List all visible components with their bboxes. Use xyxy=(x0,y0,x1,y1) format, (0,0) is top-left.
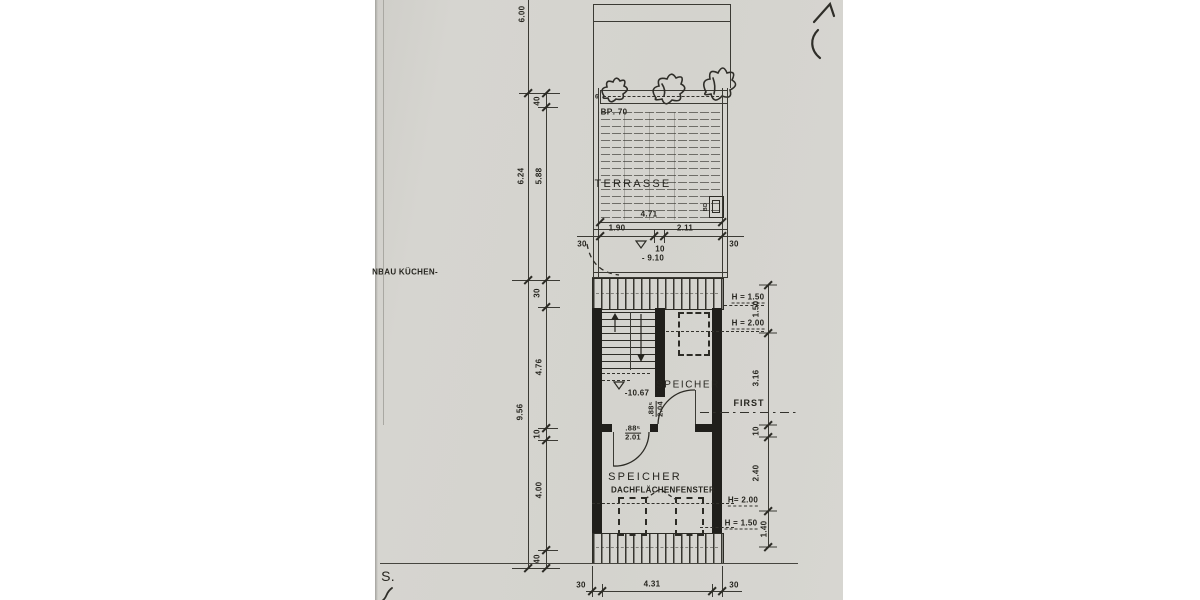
dim-30-bot-left: 30 xyxy=(576,581,586,590)
first-label: FIRST xyxy=(734,398,765,408)
dim-431: 4.31 xyxy=(644,580,661,589)
dim-10-mid: 10 xyxy=(655,245,665,254)
dim-956: 9.56 xyxy=(516,404,525,421)
dim-10-left: 10 xyxy=(533,429,542,439)
stair-down-arrow xyxy=(637,354,645,362)
dim-240: 2.40 xyxy=(752,465,761,482)
dim-30-terr-right: 30 xyxy=(729,240,739,249)
chimney-dashed-box xyxy=(678,312,710,356)
paper-edge-shadow xyxy=(375,0,378,600)
roof-window-chevron xyxy=(643,486,677,501)
handwritten-stroke-icon xyxy=(377,586,399,600)
level-terrace: - 9.10 xyxy=(642,254,664,263)
dim-30-bot-right: 30 xyxy=(729,581,739,590)
ground-line xyxy=(380,563,798,564)
dim-30-left: 30 xyxy=(533,288,542,298)
dim-588: 5.88 xyxy=(535,168,544,185)
side-note: NBAU KÜCHEN- xyxy=(372,268,438,277)
sheet-border-line xyxy=(383,0,384,425)
dim-10-right: 10 xyxy=(752,426,761,436)
wall-mid-a xyxy=(592,424,612,432)
stair-up-arrow xyxy=(611,313,619,320)
door-upper-size: .88⁵2.04 xyxy=(648,401,665,417)
drain-label: BD xyxy=(703,203,709,212)
floor-plan-scan: NBAU KÜCHEN- 6.00 40 6.24 5.88 30 9.56 4… xyxy=(0,0,1200,600)
level-marker-icon xyxy=(613,381,625,390)
dim-316: 3.16 xyxy=(752,370,761,387)
dim-600: 6.00 xyxy=(518,6,527,23)
dim-476: 4.76 xyxy=(535,359,544,376)
terrace-label: TERRASSE xyxy=(595,178,672,190)
dim-471: 4.71 xyxy=(641,210,658,219)
wall-mid-c xyxy=(695,424,722,432)
dim-140: 1.40 xyxy=(760,521,769,538)
handwritten-mark-icon xyxy=(806,0,846,60)
roof-band-top xyxy=(592,278,724,310)
wall-left xyxy=(592,308,602,533)
drain-box-inner xyxy=(712,200,720,213)
wall-right xyxy=(712,308,722,533)
h150-bottom: H = 1.50 xyxy=(725,519,758,530)
h200-bottom: H= 2.00 xyxy=(728,496,758,507)
level-attic: -10.67 xyxy=(625,389,649,398)
stair-direction-arrows xyxy=(602,310,658,366)
h200-top: H = 2.00 xyxy=(732,319,765,330)
dim-400: 4.00 xyxy=(535,482,544,499)
dim-211: 2.11 xyxy=(677,224,693,233)
dim-40-top: 40 xyxy=(533,96,542,106)
dim-150-right: 1.50 xyxy=(752,301,761,318)
handwritten-s: S. xyxy=(381,568,395,584)
plants-icon xyxy=(590,62,740,112)
dim-190: 1.90 xyxy=(609,224,626,233)
speicher-lower-label: SPEICHER xyxy=(608,471,682,483)
ridge-line xyxy=(700,412,796,413)
roof-band-bottom xyxy=(592,533,724,564)
door-lower-size: .88⁵2.01 xyxy=(625,425,641,442)
level-marker-icon xyxy=(635,240,647,249)
dim-624: 6.24 xyxy=(517,168,526,185)
